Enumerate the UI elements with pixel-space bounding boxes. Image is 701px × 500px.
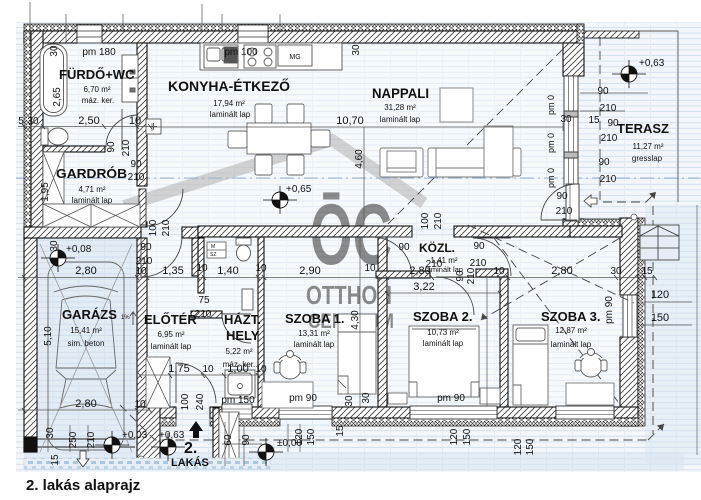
svg-text:30: 30 — [49, 240, 60, 252]
svg-text:SZ: SZ — [210, 252, 216, 258]
svg-text:210: 210 — [195, 309, 212, 320]
svg-text:+0,63: +0,63 — [159, 430, 185, 441]
svg-text:15: 15 — [641, 266, 653, 277]
svg-text:SZOBA 3.: SZOBA 3. — [541, 309, 600, 324]
svg-text:pm 0: pm 0 — [546, 133, 556, 153]
svg-text:11,27 m²: 11,27 m² — [633, 142, 664, 151]
svg-text:15,41 m²: 15,41 m² — [70, 326, 102, 335]
svg-text:±0,00: ±0,00 — [277, 438, 302, 449]
svg-text:120: 120 — [449, 428, 460, 445]
svg-text:10: 10 — [364, 263, 376, 274]
svg-text:LAKÁS: LAKÁS — [171, 456, 209, 469]
svg-text:laminált lap: laminált lap — [294, 340, 335, 349]
svg-text:30: 30 — [344, 395, 355, 407]
svg-text:+0,65: +0,65 — [286, 184, 312, 195]
svg-text:SZOBA 2.: SZOBA 2. — [413, 309, 472, 324]
svg-text:6,70 m²: 6,70 m² — [83, 85, 110, 94]
svg-text:pm 0: pm 0 — [546, 168, 556, 188]
svg-text:210: 210 — [121, 139, 132, 156]
svg-text:210: 210 — [466, 267, 477, 284]
svg-text:GARDRÓB: GARDRÓB — [56, 166, 127, 181]
svg-text:pm 0: pm 0 — [546, 95, 556, 115]
svg-text:2. lakás alaprajz: 2. lakás alaprajz — [26, 477, 140, 494]
svg-text:pm 90: pm 90 — [289, 393, 317, 404]
svg-text:75: 75 — [198, 295, 210, 306]
svg-text:30: 30 — [45, 427, 56, 439]
svg-text:210: 210 — [433, 212, 444, 229]
svg-text:120: 120 — [651, 289, 669, 301]
svg-text:6,95 m²: 6,95 m² — [157, 330, 184, 339]
svg-text:NAPPALI: NAPPALI — [372, 85, 429, 101]
svg-text:TERASZ: TERASZ — [617, 121, 669, 136]
svg-text:90: 90 — [106, 141, 117, 153]
svg-text:GARÁZS: GARÁZS — [62, 307, 117, 322]
svg-text:laminált lap: laminált lap — [72, 196, 113, 205]
svg-text:15: 15 — [588, 115, 600, 126]
svg-text:210: 210 — [426, 259, 443, 270]
svg-text:210: 210 — [601, 133, 618, 144]
svg-text:1,00: 1,00 — [227, 363, 248, 375]
svg-text:100: 100 — [148, 219, 159, 236]
svg-text:2,50: 2,50 — [78, 115, 99, 127]
svg-text:240: 240 — [195, 393, 206, 410]
svg-text:10: 10 — [129, 115, 141, 127]
svg-text:1,40: 1,40 — [217, 265, 238, 277]
svg-text:HÁZT.: HÁZT. — [224, 312, 261, 327]
svg-text:4,60: 4,60 — [354, 149, 365, 169]
svg-text:10,73 m²: 10,73 m² — [427, 328, 459, 337]
svg-text:250: 250 — [68, 431, 79, 448]
svg-text:pm 180: pm 180 — [82, 47, 116, 58]
svg-text:KÖZL.: KÖZL. — [419, 240, 455, 255]
svg-text:30: 30 — [49, 45, 60, 57]
svg-text:5,22 m²: 5,22 m² — [225, 347, 252, 356]
svg-text:100: 100 — [420, 212, 431, 229]
svg-text:5: 5 — [18, 116, 24, 127]
svg-text:HELY: HELY — [226, 328, 260, 343]
svg-text:60: 60 — [223, 434, 234, 446]
svg-text:13,31 m²: 13,31 m² — [298, 329, 330, 338]
svg-text:210: 210 — [470, 258, 487, 269]
svg-text:31,28 m²: 31,28 m² — [384, 103, 416, 112]
svg-text:5,10: 5,10 — [43, 326, 54, 346]
svg-text:150: 150 — [525, 438, 536, 455]
svg-text:2,80: 2,80 — [75, 398, 96, 410]
svg-text:17,94 m²: 17,94 m² — [213, 99, 245, 108]
svg-text:laminált lap: laminált lap — [210, 110, 251, 119]
svg-text:pm 100: pm 100 — [224, 47, 258, 58]
svg-text:2,80: 2,80 — [75, 265, 96, 277]
svg-text:+0,03: +0,03 — [122, 430, 148, 441]
svg-text:120: 120 — [513, 438, 524, 455]
svg-text:pm 90: pm 90 — [437, 393, 465, 404]
svg-text:90: 90 — [398, 242, 410, 253]
svg-text:90: 90 — [598, 157, 610, 168]
svg-text:sim. beton: sim. beton — [68, 339, 105, 348]
svg-text:KONYHA-ÉTKEZŐ: KONYHA-ÉTKEZŐ — [168, 77, 290, 94]
svg-text:210: 210 — [600, 103, 617, 114]
svg-text:12,87 m²: 12,87 m² — [555, 326, 587, 335]
svg-text:10: 10 — [135, 266, 147, 277]
svg-text:90: 90 — [241, 434, 252, 446]
svg-text:210: 210 — [128, 172, 145, 183]
svg-text:10: 10 — [196, 263, 208, 274]
svg-text:gresslap: gresslap — [632, 154, 663, 163]
svg-text:10: 10 — [202, 364, 214, 375]
svg-text:10: 10 — [493, 266, 505, 277]
svg-text:100: 100 — [180, 393, 191, 410]
svg-text:+0,08: +0,08 — [66, 244, 92, 255]
svg-text:30: 30 — [27, 116, 39, 127]
svg-text:90: 90 — [607, 118, 619, 129]
svg-text:90: 90 — [130, 159, 142, 170]
svg-text:4,71 m²: 4,71 m² — [78, 185, 105, 194]
svg-text:laminált lap: laminált lap — [151, 342, 192, 351]
svg-text:pm 90: pm 90 — [604, 296, 615, 324]
svg-text:10: 10 — [134, 399, 146, 410]
svg-text:150: 150 — [651, 312, 669, 324]
svg-text:4,30: 4,30 — [350, 310, 361, 330]
svg-text:10: 10 — [255, 263, 267, 274]
svg-text:SZOBA 1.: SZOBA 1. — [285, 311, 344, 326]
svg-text:210: 210 — [600, 174, 617, 185]
svg-text:1,35: 1,35 — [162, 265, 183, 277]
svg-text:M: M — [211, 244, 215, 250]
svg-text:2,65: 2,65 — [52, 87, 63, 107]
svg-text:210: 210 — [556, 206, 573, 217]
svg-text:30: 30 — [560, 114, 572, 125]
svg-text:laminált lap: laminált lap — [380, 115, 421, 124]
svg-text:90: 90 — [597, 86, 609, 97]
svg-text:1,75: 1,75 — [168, 363, 189, 375]
svg-text:ELŐTÉR: ELŐTÉR — [144, 312, 197, 327]
svg-text:MG: MG — [289, 54, 300, 61]
svg-text:30: 30 — [361, 392, 372, 404]
svg-text:90: 90 — [455, 270, 466, 282]
svg-text:210: 210 — [136, 256, 153, 267]
svg-text:150: 150 — [306, 428, 317, 445]
svg-text:laminált lap: laminált lap — [551, 340, 592, 349]
svg-text:+0,63: +0,63 — [639, 58, 665, 69]
svg-text:30: 30 — [610, 266, 622, 277]
svg-text:10,70: 10,70 — [336, 115, 364, 127]
svg-text:210: 210 — [86, 431, 97, 448]
svg-text:2,90: 2,90 — [299, 265, 320, 277]
svg-text:1%: 1% — [121, 315, 130, 321]
svg-text:pm 150: pm 150 — [221, 395, 255, 406]
svg-text:90: 90 — [556, 191, 568, 202]
svg-text:10: 10 — [255, 364, 267, 375]
svg-text:2.: 2. — [184, 440, 197, 457]
svg-text:90: 90 — [140, 242, 152, 253]
svg-text:2,80: 2,80 — [551, 265, 572, 277]
svg-text:15: 15 — [50, 454, 61, 466]
svg-text:30: 30 — [351, 44, 362, 56]
svg-text:máz. ker.: máz. ker. — [82, 96, 114, 105]
svg-text:FÜRDŐ+WC: FÜRDŐ+WC — [59, 67, 135, 82]
svg-text:1,95: 1,95 — [40, 182, 51, 202]
svg-text:laminált lap: laminált lap — [423, 339, 464, 348]
svg-text:150: 150 — [462, 428, 473, 445]
svg-text:15: 15 — [335, 425, 346, 437]
svg-text:3,22: 3,22 — [413, 281, 434, 293]
svg-text:90: 90 — [473, 241, 485, 252]
svg-text:210: 210 — [161, 219, 172, 236]
